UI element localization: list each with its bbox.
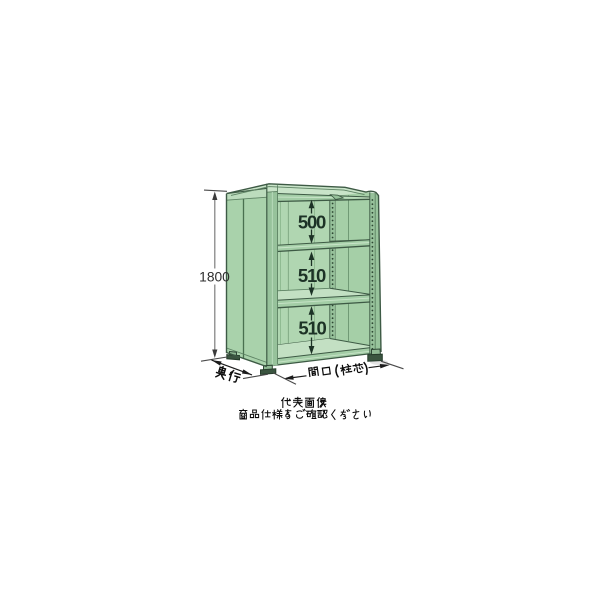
svg-text:510: 510 [298, 265, 326, 286]
svg-text:1800: 1800 [199, 270, 230, 285]
svg-text:510: 510 [298, 318, 326, 339]
svg-text:500: 500 [298, 212, 326, 233]
